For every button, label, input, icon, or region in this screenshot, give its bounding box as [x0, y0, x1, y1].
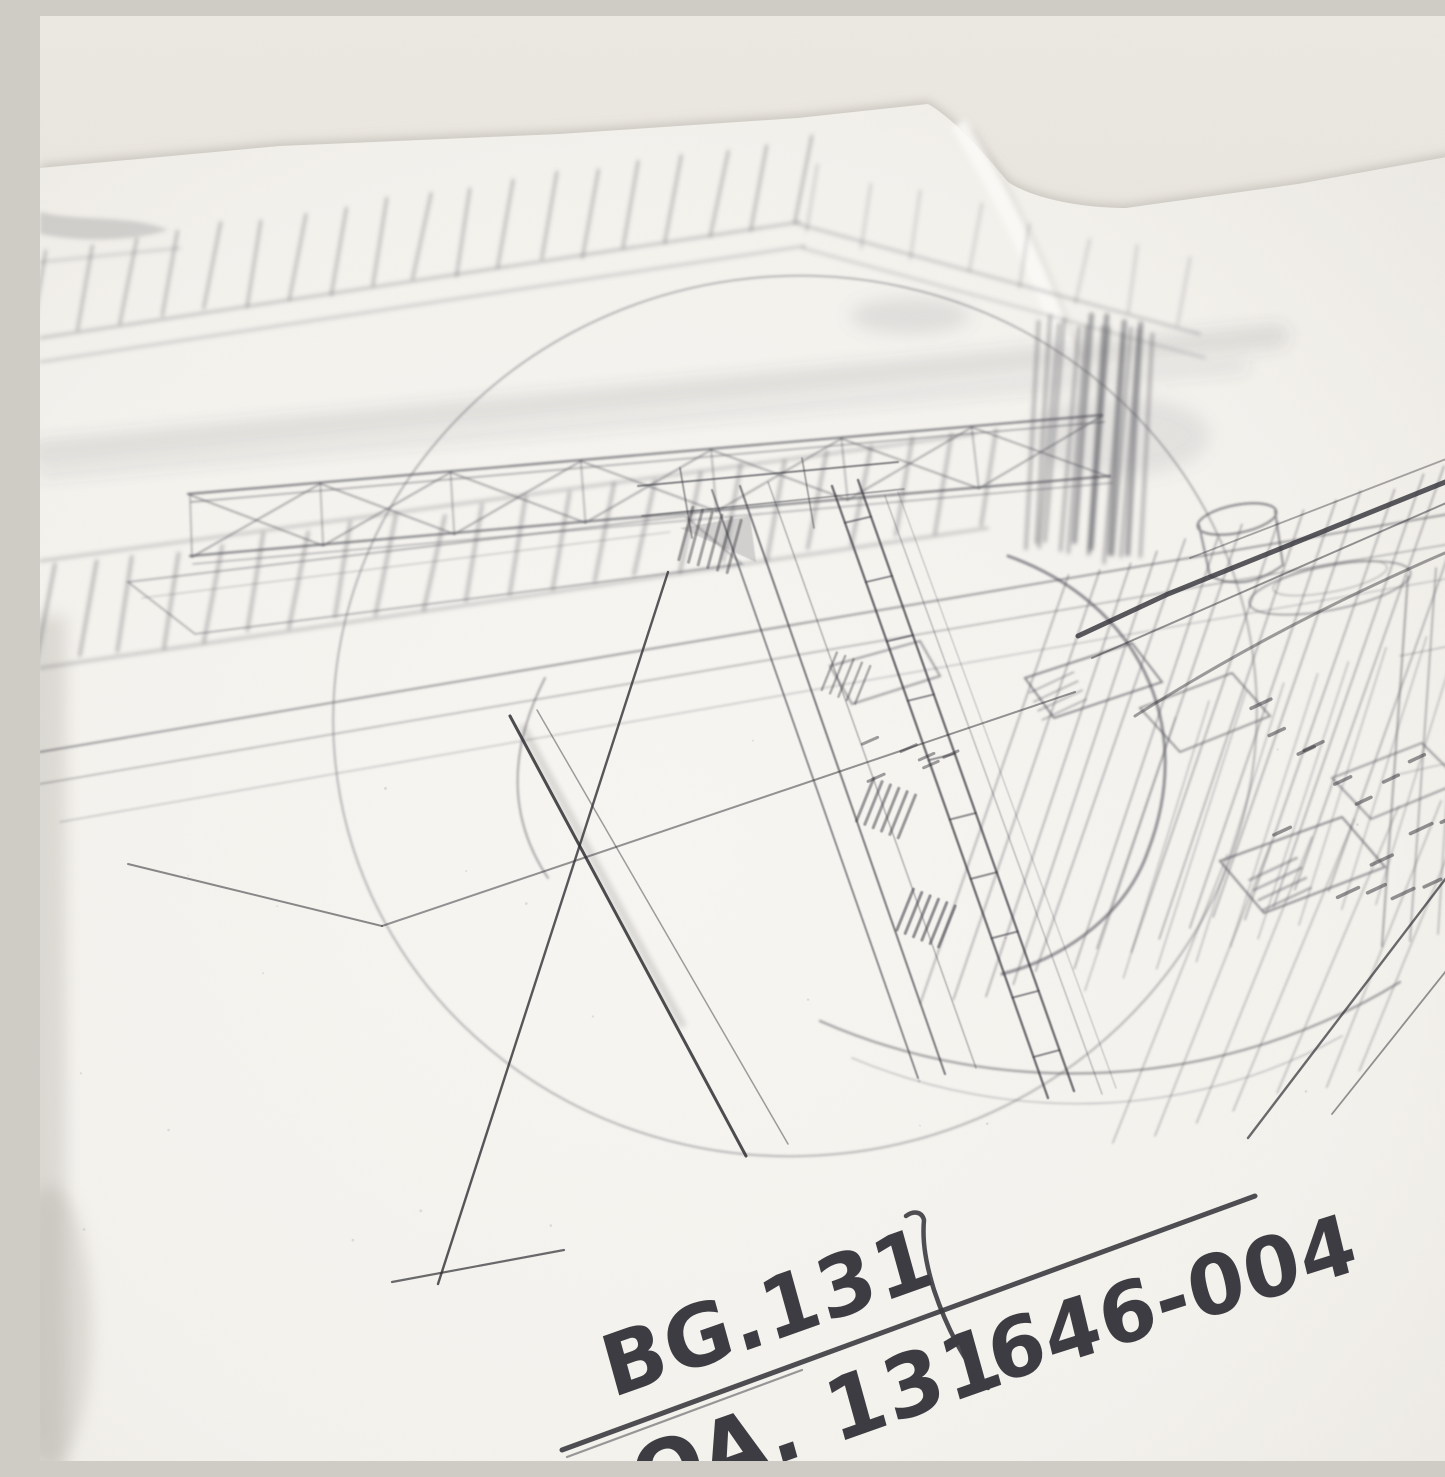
photo-of-pencil-sketch: BG.131 646-004 OA. 131 — [40, 16, 1445, 1461]
sketch-canvas: BG.131 646-004 OA. 131 — [40, 16, 1445, 1461]
photo-grain-overlay — [40, 16, 1445, 1461]
